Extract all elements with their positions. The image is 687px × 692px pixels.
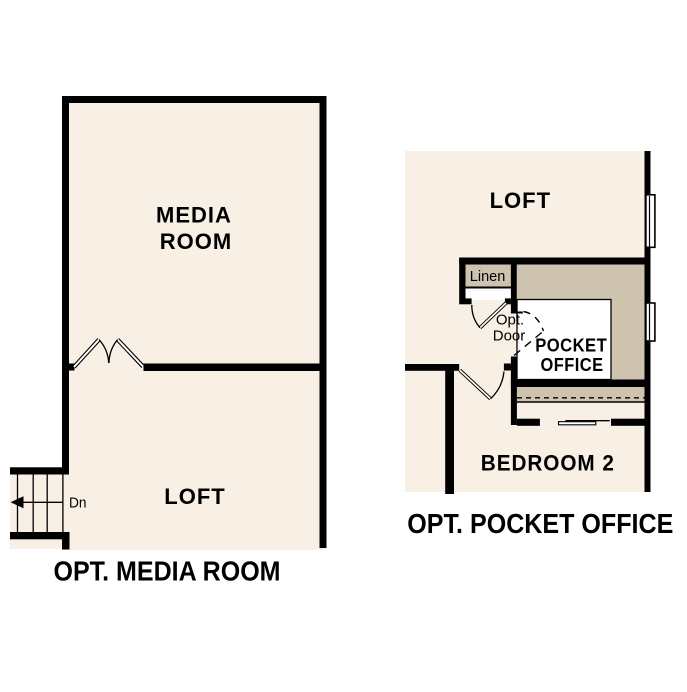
svg-text:Door: Door — [493, 328, 526, 345]
svg-text:LOFT: LOFT — [164, 484, 225, 509]
svg-text:BEDROOM 2: BEDROOM 2 — [481, 450, 615, 475]
svg-text:POCKET: POCKET — [535, 335, 607, 355]
svg-text:ROOM: ROOM — [160, 229, 232, 254]
svg-text:Dn: Dn — [69, 495, 87, 512]
svg-text:OFFICE: OFFICE — [541, 355, 604, 375]
svg-text:Linen: Linen — [470, 268, 506, 285]
svg-text:OPT. MEDIA ROOM: OPT. MEDIA ROOM — [54, 556, 281, 587]
svg-text:MEDIA: MEDIA — [156, 203, 232, 228]
svg-text:LOFT: LOFT — [490, 188, 551, 213]
svg-text:OPT. POCKET OFFICE: OPT. POCKET OFFICE — [407, 508, 673, 539]
svg-text:Opt.: Opt. — [496, 312, 524, 329]
